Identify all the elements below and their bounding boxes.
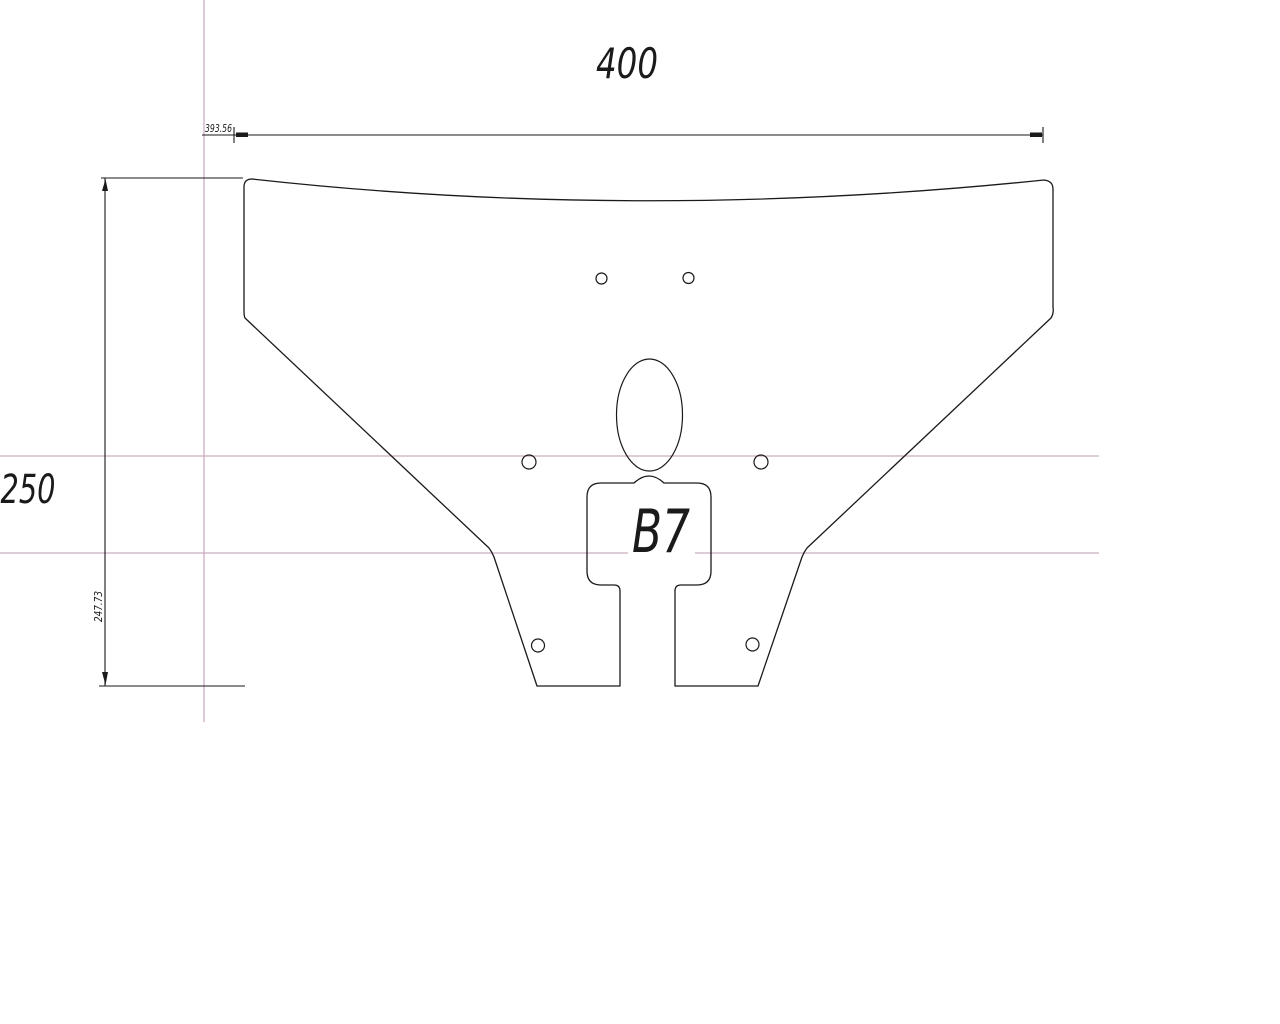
top-right-hole	[683, 273, 694, 284]
width-dimension-arrow-right	[1030, 133, 1042, 138]
width-dimension-label: 400	[596, 39, 658, 88]
drawing-canvas: 400 393.56 250 247.73 B7	[0, 0, 1280, 1024]
mid-right-hole	[754, 455, 768, 469]
width-dimension-precise-label: 393.56	[205, 122, 232, 135]
oval-hole	[617, 359, 683, 471]
part-label: B7	[632, 497, 690, 567]
top-left-hole	[596, 273, 607, 284]
part-outline	[244, 179, 1053, 686]
leg-left-hole	[532, 639, 545, 652]
leg-right-hole	[746, 638, 759, 651]
cad-drawing: 400 393.56 250 247.73 B7	[0, 0, 1280, 1024]
mid-left-hole	[522, 455, 536, 469]
width-dimension-arrow-left	[236, 133, 248, 138]
height-dimension-precise-label: 247.73	[92, 591, 105, 622]
height-dimension-arrow-bottom	[102, 672, 108, 685]
height-dimension-arrow-top	[102, 179, 108, 191]
height-dimension-label: 250	[1, 467, 56, 513]
